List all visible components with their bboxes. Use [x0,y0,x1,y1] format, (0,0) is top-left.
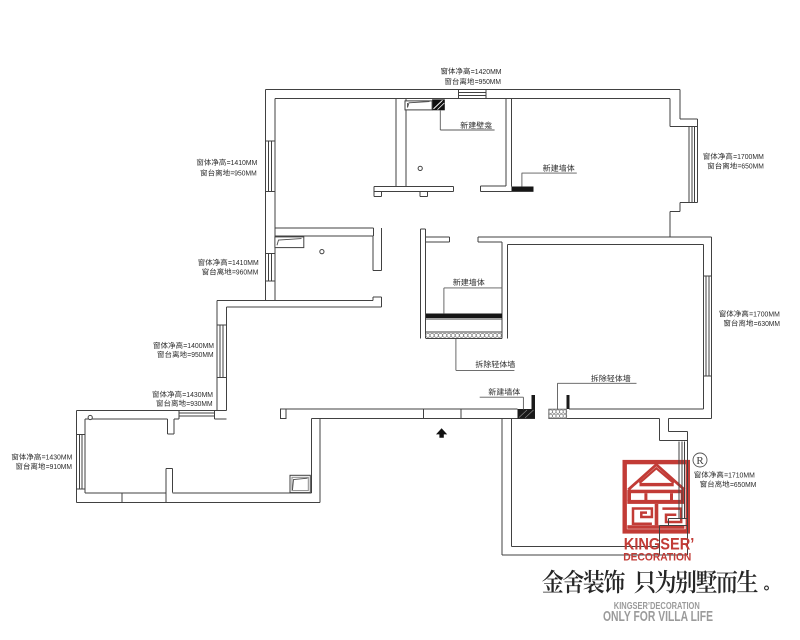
svg-text:KINGSER’: KINGSER’ [624,534,695,553]
svg-text:=1700MM: =1700MM [733,152,764,161]
svg-text:ONLY FOR VILLA LIFE: ONLY FOR VILLA LIFE [603,609,713,625]
svg-text:=910MM: =910MM [46,462,72,471]
svg-text:=960MM: =960MM [232,268,258,277]
svg-text:=1410MM: =1410MM [228,258,259,267]
svg-text:=1700MM: =1700MM [749,309,780,318]
svg-text:=930MM: =930MM [186,399,212,408]
svg-text:R: R [696,455,704,467]
svg-text:=950MM: =950MM [475,77,501,86]
svg-text:=1420MM: =1420MM [471,67,502,76]
svg-text:=1410MM: =1410MM [227,158,258,167]
svg-text:=950MM: =950MM [187,350,213,359]
svg-text:=630MM: =630MM [754,319,780,328]
svg-text:=1430MM: =1430MM [182,390,213,399]
svg-text:=1430MM: =1430MM [42,453,73,462]
svg-text:=650MM: =650MM [730,480,756,489]
svg-text:DECORATION: DECORATION [623,552,691,564]
svg-text:=650MM: =650MM [738,162,764,171]
svg-text:=1400MM: =1400MM [183,341,214,350]
svg-text:=950MM: =950MM [230,169,256,178]
svg-text:=1710MM: =1710MM [724,470,755,479]
